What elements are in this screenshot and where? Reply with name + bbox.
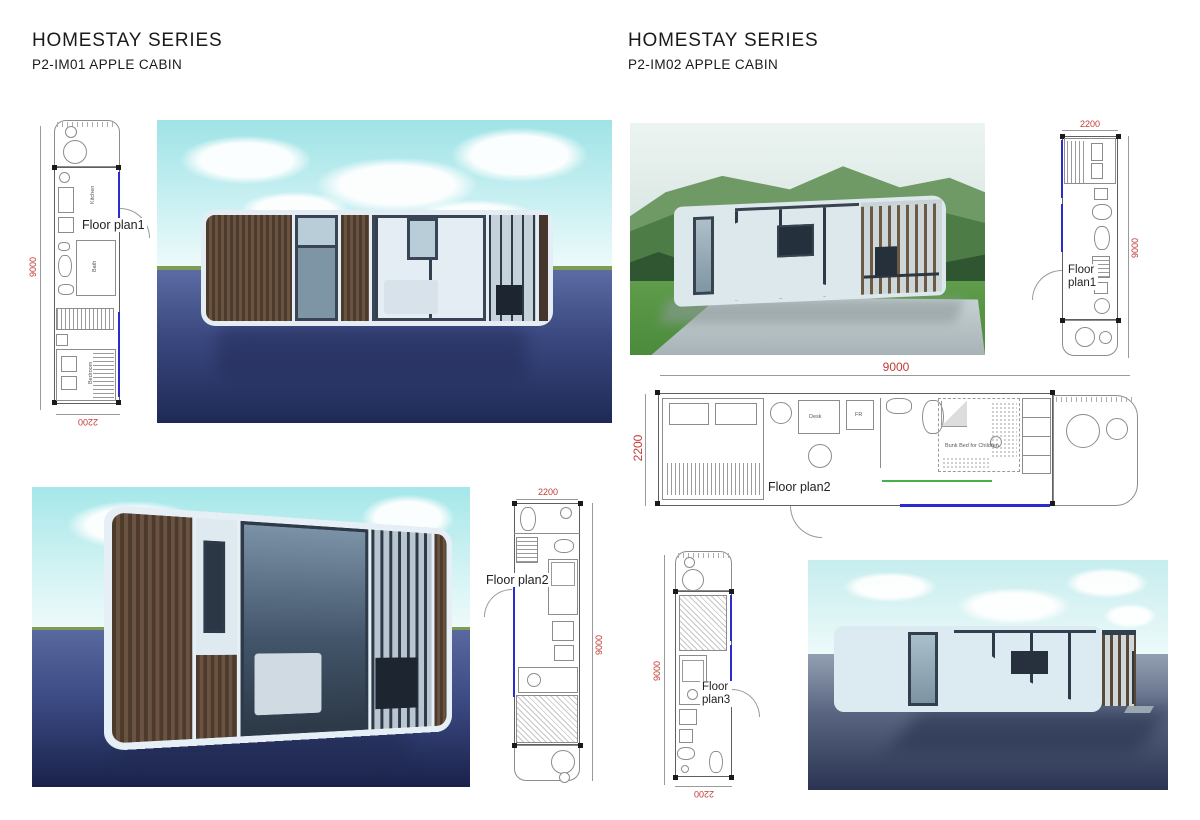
plan-label: Floor plan1 bbox=[1066, 264, 1098, 290]
entry-door bbox=[295, 215, 338, 321]
cabin-exterior bbox=[104, 504, 452, 751]
cooktop bbox=[682, 660, 704, 682]
deck-slat-wall bbox=[861, 199, 942, 295]
mattress-hatch bbox=[93, 352, 114, 398]
interior-window bbox=[777, 224, 814, 258]
pillow bbox=[669, 403, 709, 425]
render-im02-landscape bbox=[630, 123, 985, 355]
wood-column bbox=[539, 215, 548, 321]
column-marker bbox=[1060, 318, 1065, 323]
mattress-hatch bbox=[1067, 141, 1085, 183]
window-line bbox=[1061, 204, 1063, 252]
door-swing-arc bbox=[790, 506, 822, 538]
glass-wall bbox=[954, 630, 1096, 708]
wood-cladding bbox=[206, 215, 292, 321]
door-window bbox=[908, 632, 938, 706]
deck-railing bbox=[1132, 651, 1134, 704]
shadow bbox=[889, 710, 1168, 752]
floor-plan-im02-3: 9000 2200 Floor plan3 bbox=[655, 543, 750, 798]
wardrobe bbox=[1022, 398, 1051, 474]
door-window bbox=[203, 540, 225, 633]
deck-table bbox=[1066, 414, 1100, 448]
render-im01-side bbox=[157, 120, 612, 423]
floor-plan-im01-2: 2200 9000 Floor plan2 bbox=[500, 485, 610, 790]
door-swing-arc bbox=[1032, 270, 1062, 300]
glass-wall bbox=[241, 521, 368, 736]
column-marker bbox=[52, 165, 57, 170]
bed bbox=[662, 398, 764, 500]
deck-outline bbox=[675, 551, 732, 591]
plant-icon bbox=[65, 126, 77, 138]
catalog-page: HOMESTAY SERIES P2-IM01 APPLE CABIN HOME… bbox=[0, 0, 1200, 820]
render-im01-perspective bbox=[32, 487, 470, 787]
upper-window bbox=[407, 218, 437, 260]
sink bbox=[1092, 204, 1112, 220]
nightstand bbox=[56, 334, 68, 346]
series-title: HOMESTAY SERIES bbox=[32, 30, 222, 52]
bunk-hatch bbox=[942, 457, 990, 469]
column-marker bbox=[512, 501, 517, 506]
stairs bbox=[516, 537, 538, 563]
dimension-2200: 2200 bbox=[631, 435, 645, 462]
sink bbox=[886, 398, 912, 414]
prep-counter bbox=[518, 667, 578, 693]
sink bbox=[677, 747, 695, 760]
deck-chair bbox=[875, 246, 896, 277]
basin bbox=[527, 673, 541, 687]
bunk-label: Bunk Bed for Children bbox=[945, 443, 999, 449]
dimension-line bbox=[645, 394, 646, 506]
pillow bbox=[1091, 143, 1103, 161]
column-marker bbox=[1050, 501, 1055, 506]
dimension-9000: 9000 bbox=[28, 257, 38, 277]
window-line bbox=[730, 645, 732, 683]
column-marker bbox=[578, 743, 583, 748]
decorative-shape: Floor bbox=[1068, 264, 1096, 277]
window-line bbox=[118, 312, 120, 397]
door-module bbox=[195, 518, 237, 739]
bunk-hatch bbox=[991, 402, 1017, 458]
pillow bbox=[715, 403, 757, 425]
desk: Desk bbox=[798, 400, 840, 434]
toilet bbox=[58, 255, 72, 277]
plant-icon bbox=[1106, 418, 1128, 440]
floor-plan-im02-1: 2200 9000 Floor plan1 bbox=[1050, 118, 1138, 368]
plan-label: Floor plan2 bbox=[484, 573, 551, 587]
fridge: FR bbox=[846, 400, 874, 430]
dimension-2200: 2200 bbox=[78, 417, 98, 427]
column-marker bbox=[578, 501, 583, 506]
plant-icon bbox=[1099, 331, 1112, 344]
bunk-room: Bunk Bed for Children bbox=[938, 398, 1020, 472]
sink bbox=[58, 284, 74, 295]
column-marker bbox=[116, 400, 121, 405]
shelf bbox=[1023, 436, 1050, 437]
door-swing-arc bbox=[484, 589, 512, 617]
column-marker bbox=[1116, 318, 1121, 323]
floor-drain bbox=[681, 765, 689, 773]
cloud bbox=[958, 588, 1070, 624]
roof-edge bbox=[1102, 630, 1136, 635]
cabin-exterior bbox=[674, 195, 946, 307]
glass-wall bbox=[735, 203, 859, 300]
header-im02: HOMESTAY SERIES P2-IM02 APPLE CABIN bbox=[628, 30, 818, 72]
floor-plan-im02-2: 9000 2200 Desk FR bbox=[638, 358, 1148, 553]
sink bbox=[560, 507, 572, 519]
dimension-9000: 9000 bbox=[1130, 238, 1140, 258]
partition-wall bbox=[880, 398, 881, 468]
deck-outline bbox=[1062, 320, 1118, 356]
dimension-2200: 2200 bbox=[538, 487, 558, 497]
pillow bbox=[61, 376, 77, 390]
cabinet bbox=[679, 729, 693, 743]
column-marker bbox=[655, 501, 660, 506]
shower-glass-line bbox=[882, 480, 992, 482]
dimension-line bbox=[516, 499, 578, 500]
plan-label: Floor plan3 bbox=[700, 681, 732, 707]
window-line bbox=[513, 585, 515, 697]
window-line bbox=[900, 504, 1050, 507]
deck-slat-screen bbox=[372, 530, 432, 730]
bed bbox=[1064, 138, 1116, 184]
deck-furniture bbox=[375, 657, 417, 709]
cooktop bbox=[551, 562, 575, 586]
stairs bbox=[56, 308, 114, 330]
deck-table bbox=[63, 140, 87, 164]
basin bbox=[58, 242, 70, 251]
dimension-line bbox=[1062, 130, 1118, 131]
reflection bbox=[217, 328, 527, 380]
dimension-9000: 9000 bbox=[652, 661, 662, 681]
dimension-9000: 9000 bbox=[594, 635, 604, 655]
sink bbox=[59, 172, 70, 183]
shelf bbox=[1023, 417, 1050, 418]
deck-outline bbox=[1053, 395, 1138, 506]
bed-silhouette bbox=[384, 280, 438, 314]
stool bbox=[808, 444, 832, 468]
room-label-bath: Bath bbox=[92, 261, 98, 272]
plan-label: Floor plan2 bbox=[766, 480, 833, 494]
toilet bbox=[709, 751, 723, 773]
deck-table bbox=[1075, 327, 1095, 347]
window-line bbox=[730, 595, 732, 641]
pillow bbox=[61, 356, 77, 372]
toilet bbox=[520, 507, 536, 531]
plant-icon bbox=[684, 557, 695, 568]
interior-silhouette bbox=[1011, 651, 1048, 674]
deck-slat-wall bbox=[1102, 630, 1136, 706]
dimension-line bbox=[40, 126, 41, 410]
dimension-line bbox=[660, 375, 1130, 376]
dimension-9000: 9000 bbox=[883, 360, 910, 374]
side-table bbox=[770, 402, 792, 424]
column-marker bbox=[729, 775, 734, 780]
fridge bbox=[58, 217, 74, 233]
dimension-line bbox=[675, 786, 732, 787]
pillow bbox=[1091, 163, 1103, 179]
door-handle bbox=[687, 689, 698, 700]
mattress-hatch bbox=[667, 463, 761, 495]
decorative-shape: plan3 bbox=[702, 694, 730, 707]
dimension-line bbox=[56, 414, 120, 415]
series-title: HOMESTAY SERIES bbox=[628, 30, 818, 52]
cloud bbox=[844, 572, 936, 602]
column-marker bbox=[673, 775, 678, 780]
kettle bbox=[1094, 298, 1110, 314]
decorative-shape: Floor bbox=[702, 681, 730, 694]
bed-hatch bbox=[516, 695, 578, 743]
bed bbox=[56, 349, 116, 401]
transom-window bbox=[298, 218, 335, 248]
plant-icon bbox=[559, 772, 570, 783]
counter bbox=[548, 559, 578, 615]
sink bbox=[554, 539, 574, 553]
dimension-2200: 2200 bbox=[1080, 119, 1100, 129]
deck-table bbox=[682, 569, 704, 591]
deck-outline bbox=[514, 745, 580, 781]
cloud bbox=[1104, 604, 1156, 628]
plan-label: Floor plan1 bbox=[80, 218, 147, 232]
cloud bbox=[452, 128, 587, 182]
bed-hatch bbox=[679, 595, 727, 651]
column-marker bbox=[512, 743, 517, 748]
deck-slats bbox=[489, 215, 536, 321]
door-window bbox=[693, 217, 714, 295]
render-im02-side bbox=[808, 560, 1168, 790]
deck-outline bbox=[54, 120, 120, 167]
blanket-fold bbox=[941, 401, 967, 427]
cabinet bbox=[552, 621, 574, 641]
column-marker bbox=[1050, 390, 1055, 395]
dimension-line bbox=[664, 555, 665, 785]
model-subtitle: P2-IM02 APPLE CABIN bbox=[628, 57, 818, 72]
cabinet bbox=[1094, 188, 1108, 200]
window-line bbox=[1061, 140, 1063, 198]
column-marker bbox=[655, 390, 660, 395]
deck-edge bbox=[1056, 397, 1134, 402]
deck-edge bbox=[57, 122, 117, 127]
fridge-label: FR bbox=[855, 412, 862, 418]
partition-wall bbox=[514, 533, 580, 534]
column-marker bbox=[116, 165, 121, 170]
column-marker bbox=[673, 589, 678, 594]
deck-step bbox=[1124, 706, 1154, 713]
end-wall bbox=[678, 208, 733, 302]
model-subtitle: P2-IM01 APPLE CABIN bbox=[32, 57, 222, 72]
room-label-bedroom: Bedroom bbox=[88, 362, 94, 384]
shelf bbox=[1023, 455, 1050, 456]
deck-table bbox=[551, 750, 575, 774]
counter bbox=[58, 187, 74, 213]
wood-column bbox=[434, 534, 446, 726]
deck-furniture bbox=[496, 285, 522, 315]
wood-cladding bbox=[341, 215, 369, 321]
cloud bbox=[1066, 568, 1148, 598]
toilet bbox=[1094, 226, 1110, 250]
wood-lower bbox=[195, 655, 237, 739]
column-marker bbox=[1116, 134, 1121, 139]
door-swing-arc bbox=[732, 689, 760, 717]
dimension-line bbox=[1128, 136, 1129, 358]
dimension-2200: 2200 bbox=[694, 789, 714, 799]
cabin-exterior bbox=[834, 626, 1102, 712]
room-label-kitchen: Kitchen bbox=[90, 186, 96, 204]
dimension-line bbox=[592, 503, 593, 781]
desk-label: Desk bbox=[809, 414, 822, 420]
floor-plan-im01-1: 9000 2200 Kitchen Floor plan1 Bath bbox=[28, 112, 132, 427]
cloud bbox=[181, 136, 311, 184]
column-marker bbox=[729, 589, 734, 594]
wood-cladding bbox=[112, 512, 192, 743]
bed-silhouette bbox=[255, 653, 322, 716]
header-im01: HOMESTAY SERIES P2-IM01 APPLE CABIN bbox=[32, 30, 222, 72]
cabinet bbox=[679, 709, 697, 725]
glass-wall bbox=[372, 215, 486, 321]
decorative-shape: plan1 bbox=[1068, 277, 1096, 290]
cabin-exterior bbox=[201, 210, 553, 326]
sink bbox=[554, 645, 574, 661]
